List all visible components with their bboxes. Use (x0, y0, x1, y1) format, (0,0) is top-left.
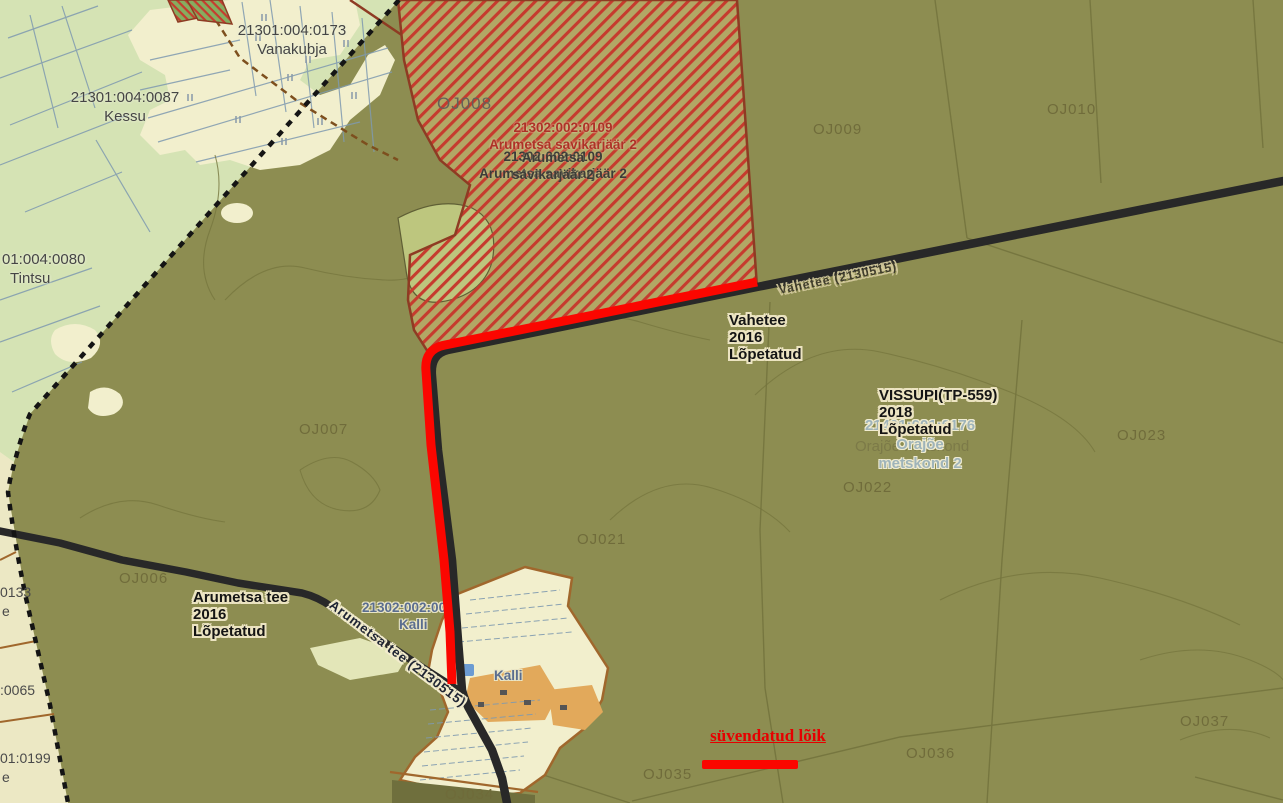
edge-label-fragment: 01:0199 (0, 750, 51, 767)
cadastral-kessu: 21301:004:0087 Kessu (45, 88, 205, 126)
region-label-oj036: OJ036 (906, 745, 955, 762)
cadastral-kalli-name-2: Kalli (494, 667, 523, 684)
annotation-line: Lõpetatud (193, 623, 288, 640)
quarry-label-dark-2: Arumetsa savikarjäär 2 (478, 149, 628, 183)
road-label-vahetee: Vahetee (2130515) (758, 254, 918, 303)
quarry-name: Arumetsa savikarjäär 2 (453, 136, 673, 153)
cadastral-kalli-number: 21302:002:00 (362, 599, 446, 616)
annotation-line: 2018 (879, 404, 997, 421)
region-label-oj037: OJ037 (1180, 713, 1229, 730)
region-label-oj021: OJ021 (577, 531, 626, 548)
region-label-oj009: OJ009 (813, 121, 862, 138)
annotation-line: Vahetee (729, 312, 802, 329)
annotation-line: 2016 (193, 606, 288, 623)
cadastral-number: 01:004:0080 (2, 250, 85, 269)
annotation-line: 2016 (729, 329, 802, 346)
edge-label-fragment: e (2, 769, 10, 786)
cadastral-number: 21301:004:0087 (45, 88, 205, 107)
region-label-oj035: OJ035 (643, 766, 692, 783)
cadastral-tintsu: 01:004:0080 Tintsu (2, 250, 85, 288)
region-label-oj010: OJ010 (1047, 101, 1096, 118)
annotation-line: VISSUPI(TP-559) (879, 387, 997, 404)
annotation-arumetsa-tee: Arumetsa tee 2016 Lõpetatud (193, 589, 288, 640)
annotation-vahetee: Vahetee 2016 Lõpetatud (729, 312, 802, 363)
map-labels-layer: OJ006 OJ007 OJ008 OJ009 OJ010 OJ021 OJ02… (0, 0, 1283, 803)
annotation-line: Lõpetatud (729, 346, 802, 363)
cadastral-name: Kessu (45, 107, 205, 126)
quarry-name: savikarjäär 2 (478, 166, 628, 183)
cadastral-kalli-name: Kalli (399, 616, 428, 633)
cadastral-vanakubja: 21301:004:0173 Vanakubja (212, 21, 372, 59)
cadastral-name: Tintsu (2, 269, 85, 288)
edge-label-fragment: :0065 (0, 682, 35, 699)
cadastral-name: metskond 2 (840, 454, 1000, 473)
quarry-number: 21302:002:0109 (453, 119, 673, 136)
cadastral-number: 21301:004:0173 (212, 21, 372, 40)
edge-label-fragment: e (2, 603, 10, 620)
region-label-oj023: OJ023 (1117, 427, 1166, 444)
annotation-vissupi: VISSUPI(TP-559) 2018 Lõpetatud (879, 387, 997, 438)
region-label-oj008: OJ008 (437, 95, 492, 112)
annotation-line: Lõpetatud (879, 421, 997, 438)
cadastral-name: Vanakubja (212, 40, 372, 59)
legend-highlight-label: süvendatud lõik (698, 727, 838, 744)
quarry-label-red: 21302:002:0109 Arumetsa savikarjäär 2 (453, 119, 673, 153)
annotation-line: Arumetsa tee (193, 589, 288, 606)
region-label-oj022: OJ022 (843, 479, 892, 496)
map-canvas[interactable]: OJ006 OJ007 OJ008 OJ009 OJ010 OJ021 OJ02… (0, 0, 1283, 803)
region-label-oj034: OJ034 (445, 786, 494, 803)
edge-label-fragment: 0133 (0, 584, 31, 601)
region-label-oj007: OJ007 (299, 421, 348, 438)
region-label-oj006: OJ006 (119, 570, 168, 587)
